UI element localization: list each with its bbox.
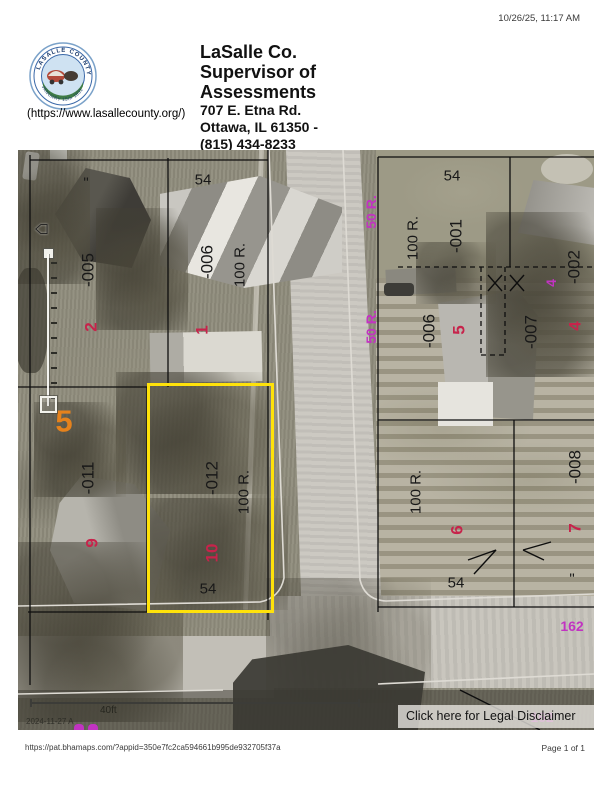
org-address-street: 707 E. Etna Rd. xyxy=(200,102,420,119)
map-label: 9 xyxy=(84,538,101,547)
map-label: 54 xyxy=(448,576,465,591)
map-label: -006 xyxy=(421,314,438,348)
zoom-slider-tick xyxy=(51,262,57,264)
zoom-slider-tick xyxy=(51,292,57,294)
map-label: -007 xyxy=(523,315,540,349)
map-label: 4 xyxy=(567,321,584,330)
map-label: -012 xyxy=(204,461,221,495)
map-label: 54 xyxy=(200,582,217,597)
org-name-line1: LaSalle Co. xyxy=(200,42,420,62)
zoom-slider-tick xyxy=(51,277,57,279)
map-label: 162 xyxy=(560,619,583,633)
footer-page-number: Page 1 of 1 xyxy=(542,743,585,753)
map-label: 1 xyxy=(194,325,211,334)
zoom-slider[interactable] xyxy=(38,248,58,418)
scale-label: 40ft xyxy=(100,705,117,716)
zoom-slider-track[interactable] xyxy=(47,254,49,406)
map-label: 100 R. xyxy=(409,470,424,514)
zoom-slider-tick xyxy=(51,322,57,324)
map-label: -011 xyxy=(80,462,97,495)
map-label: 2 xyxy=(83,322,100,331)
map-label: 54 xyxy=(444,169,461,184)
org-header: LaSalle Co. Supervisor of Assessments 70… xyxy=(200,42,420,153)
map-label: -008 xyxy=(567,450,584,484)
map-label: -001 xyxy=(448,219,465,253)
home-button[interactable]: ⌂ xyxy=(34,216,58,240)
map-label: 54 xyxy=(195,173,212,188)
map-label: 50 R. xyxy=(364,310,378,343)
footer-url: https://pat.bhamaps.com/?appid=350e7fc2c… xyxy=(25,743,281,752)
county-seal-icon: LASALLE COUNTY JANUARY 15th 1831 xyxy=(29,42,97,110)
map-label: " xyxy=(569,572,574,587)
org-address-city: Ottawa, IL 61350 - xyxy=(200,119,420,136)
org-name-line2: Supervisor of xyxy=(200,62,420,82)
print-timestamp: 10/26/25, 11:17 AM xyxy=(498,13,580,24)
map-label: -006 xyxy=(199,245,216,279)
county-seal-logo[interactable]: LASALLE COUNTY JANUARY 15th 1831 xyxy=(29,42,97,110)
org-name-line3: Assessments xyxy=(200,82,420,102)
map-label: 10 xyxy=(204,544,221,563)
map-label: -005 xyxy=(80,253,97,287)
map-label: 5 xyxy=(451,325,468,334)
zoom-slider-thumb[interactable] xyxy=(40,396,57,413)
map-label: -002 xyxy=(566,250,583,284)
site-link[interactable]: (https://www.lasallecounty.org/) xyxy=(27,108,185,120)
parcel-lines xyxy=(18,150,594,730)
home-icon: ⌂ xyxy=(28,222,54,235)
zoom-slider-tick xyxy=(51,367,57,369)
map-label: 100 R. xyxy=(406,216,421,260)
map-label: 100 R. xyxy=(237,470,252,514)
selected-parcel-highlight[interactable] xyxy=(147,383,274,613)
zoom-slider-tick xyxy=(51,337,57,339)
zoom-slider-tick xyxy=(51,307,57,309)
map-label: 100 R. xyxy=(233,243,248,287)
map-viewport[interactable]: 54"-005-006100 R.215-0119-012100 R.10545… xyxy=(18,150,594,730)
map-label: 4 xyxy=(544,279,558,287)
print-page: 10/26/25, 11:17 AM LASALLE COUNTY JANUAR… xyxy=(0,0,612,792)
zoom-slider-tick xyxy=(51,352,57,354)
map-label: 6 xyxy=(449,525,466,534)
zoom-slider-tick xyxy=(51,382,57,384)
clipped-road-label xyxy=(74,724,84,730)
imagery-date: 2024-11-27 A xyxy=(26,717,73,726)
map-label: 7 xyxy=(567,523,584,532)
legal-disclaimer-link[interactable]: Click here for Legal Disclaimer xyxy=(398,705,594,728)
legal-disclaimer-text: Click here for Legal Disclaimer xyxy=(406,709,576,723)
map-label: 50 R. xyxy=(364,195,378,228)
map-label: " xyxy=(83,176,88,191)
scale-bar xyxy=(30,702,360,704)
